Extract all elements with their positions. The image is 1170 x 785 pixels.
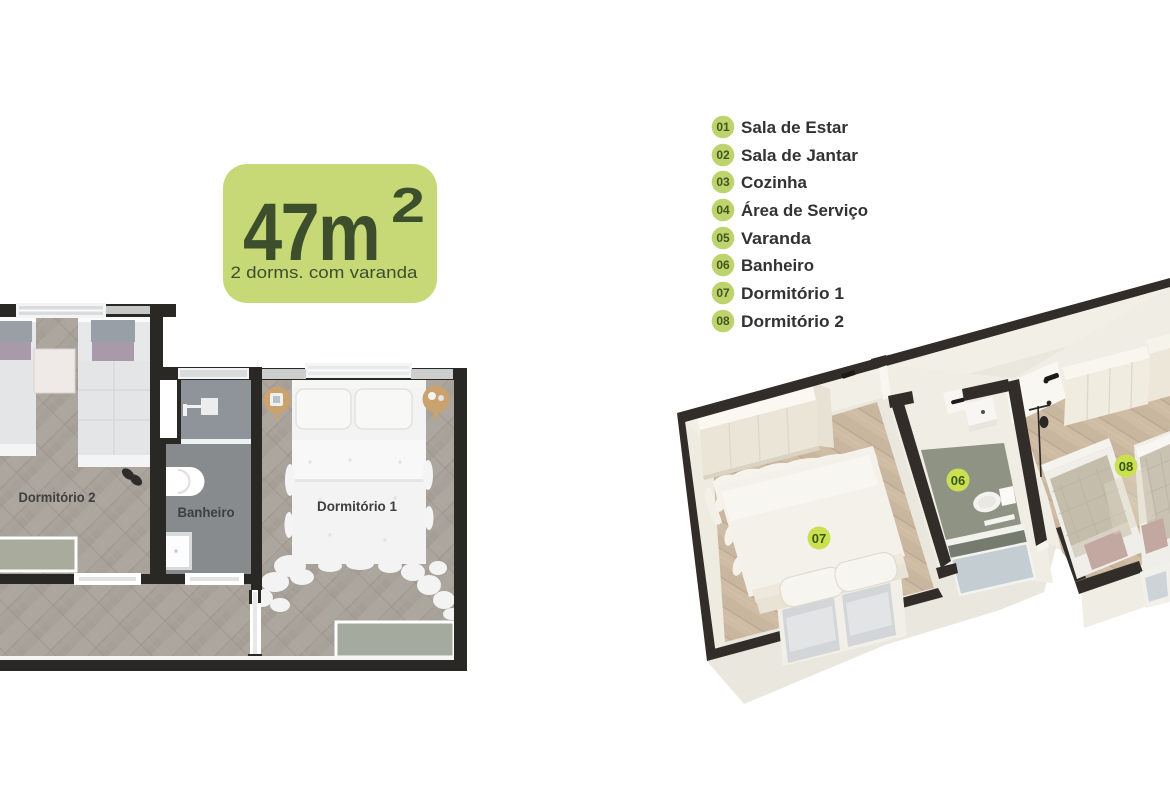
svg-text:2: 2 (391, 179, 425, 233)
svg-text:08: 08 (716, 314, 730, 328)
svg-text:02: 02 (716, 148, 730, 162)
svg-text:Dormitório 2: Dormitório 2 (741, 313, 844, 331)
svg-text:Área de Serviço: Área de Serviço (741, 201, 868, 220)
svg-text:05: 05 (716, 231, 730, 245)
svg-text:04: 04 (716, 203, 730, 217)
svg-text:01: 01 (716, 120, 730, 134)
svg-text:Varanda: Varanda (741, 230, 812, 248)
svg-text:08: 08 (1119, 459, 1133, 474)
svg-text:Dormitório 1: Dormitório 1 (317, 498, 397, 514)
svg-text:07: 07 (812, 531, 826, 546)
svg-text:07: 07 (716, 286, 730, 300)
svg-text:Sala de Estar: Sala de Estar (741, 119, 849, 137)
svg-text:06: 06 (951, 473, 965, 488)
svg-text:Banheiro: Banheiro (178, 504, 235, 520)
svg-text:2 dorms. com varanda: 2 dorms. com varanda (231, 264, 419, 282)
svg-text:Dormitório 1: Dormitório 1 (741, 285, 844, 303)
svg-text:03: 03 (716, 175, 730, 189)
svg-text:Banheiro: Banheiro (741, 257, 814, 275)
svg-text:Sala de Jantar: Sala de Jantar (741, 147, 859, 165)
svg-text:Cozinha: Cozinha (741, 174, 808, 192)
svg-text:06: 06 (716, 258, 730, 272)
svg-text:Dormitório 2: Dormitório 2 (19, 489, 96, 505)
